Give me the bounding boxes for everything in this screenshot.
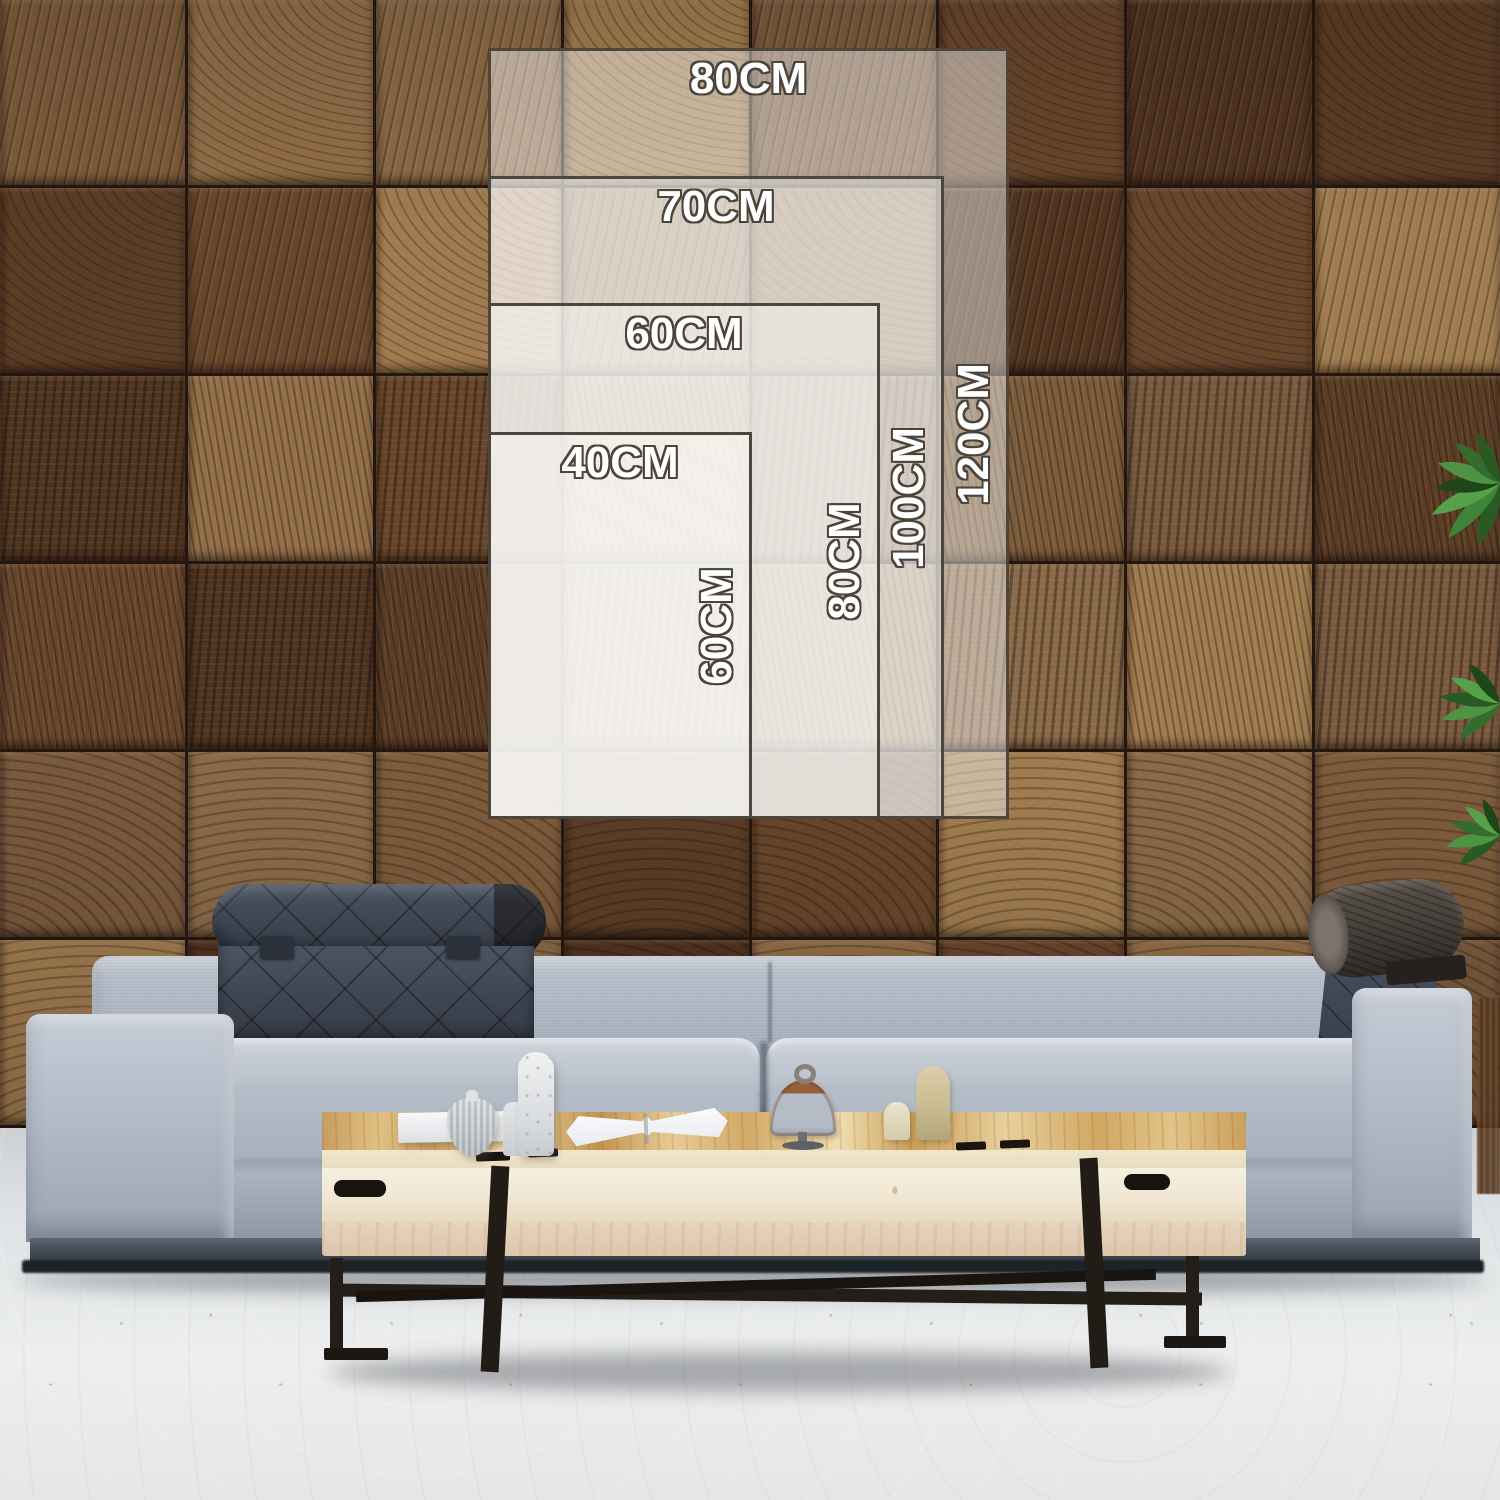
- height-label-60cm: 60CM: [695, 567, 739, 684]
- width-label-70cm: 70CM: [657, 185, 774, 229]
- height-label-120cm: 120CM: [952, 363, 996, 505]
- sofa-base-shadow: [22, 1260, 1484, 1273]
- cloche-foot: [782, 1141, 824, 1150]
- wood-tile: [0, 188, 185, 373]
- potted-plant-leaves: [1400, 398, 1500, 918]
- headrest-strap: [446, 936, 480, 958]
- wood-tile: [1127, 752, 1312, 937]
- wood-tile: [0, 376, 185, 561]
- size-rect-40x60cm: 40CM 60CM: [488, 432, 752, 819]
- table-hinge: [1000, 1139, 1030, 1148]
- wood-tile: [1127, 188, 1312, 373]
- wood-tile: [188, 376, 373, 561]
- table-handle: [1124, 1174, 1170, 1190]
- table-hinge: [956, 1141, 986, 1150]
- wood-tile: [1127, 0, 1312, 185]
- wood-tile: [188, 188, 373, 373]
- wood-tile: [188, 564, 373, 749]
- wood-tile: [0, 0, 185, 185]
- width-label-80cm: 80CM: [690, 57, 807, 101]
- candle-tall: [916, 1066, 950, 1140]
- height-label-100cm: 100CM: [887, 427, 931, 569]
- width-label-40cm: 40CM: [561, 441, 678, 485]
- wood-tile: [0, 752, 185, 937]
- wood-tile: [1127, 376, 1312, 561]
- sofa-armrest-left: [26, 1014, 234, 1242]
- table-front-lower: [322, 1222, 1246, 1256]
- wood-tile: [0, 564, 185, 749]
- seat-cushion-right: [766, 1038, 1420, 1096]
- wall-corner-texture: [1477, 998, 1500, 1194]
- sofa-armrest-right: [1352, 988, 1472, 1242]
- sofa-backrest-seam: [768, 962, 772, 1042]
- wood-tile: [188, 0, 373, 185]
- wood-tile: [1127, 564, 1312, 749]
- width-label-60cm: 60CM: [625, 312, 742, 356]
- wood-tile: [1315, 0, 1500, 185]
- headrest-strap: [260, 936, 294, 958]
- wood-tile: [1315, 188, 1500, 373]
- size-guide-scene: 80CM 120CM 70CM 100CM 60CM 80CM 40CM 60C…: [0, 0, 1500, 1500]
- table-foot: [324, 1348, 388, 1360]
- table-handle: [334, 1180, 386, 1197]
- carved-vase-tall: [518, 1052, 554, 1156]
- table-leg: [330, 1258, 343, 1356]
- table-top-edge: [322, 1150, 1246, 1168]
- cloche-ring-handle: [794, 1064, 816, 1084]
- table-foot: [1164, 1336, 1226, 1348]
- headrest-flap-left: [218, 946, 534, 1050]
- candle-short: [884, 1102, 910, 1140]
- height-label-80cm: 80CM: [823, 502, 867, 619]
- table-front: [322, 1168, 1246, 1224]
